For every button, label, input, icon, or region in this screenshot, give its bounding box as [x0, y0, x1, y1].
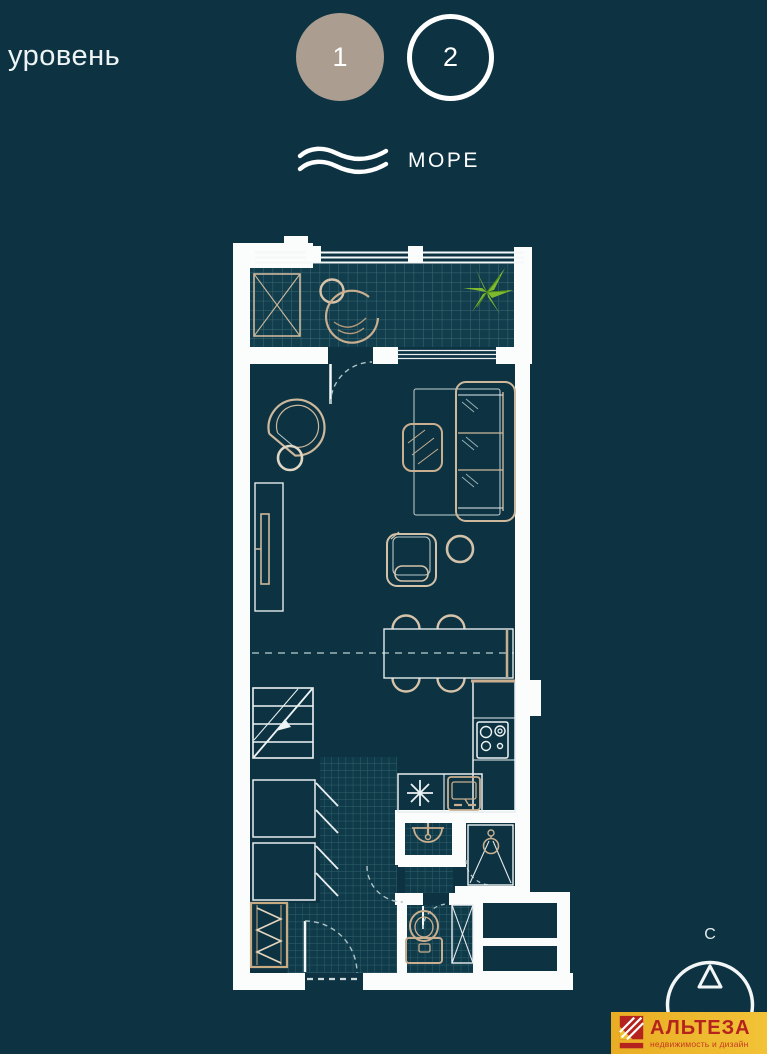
- coat-rack-icon: [251, 903, 287, 967]
- kitchen-sink-icon: [448, 777, 480, 810]
- sink-star-icon: [407, 780, 433, 806]
- level-2-button[interactable]: 2: [407, 14, 494, 101]
- level-1-number: 1: [332, 42, 347, 73]
- cooktop-icon: [477, 722, 508, 758]
- walls: [233, 236, 573, 990]
- logo-mark-icon: [618, 1015, 645, 1051]
- stairs-icon: [253, 688, 313, 758]
- sofa-icon: [456, 382, 515, 521]
- balcony-tiles: [250, 264, 515, 347]
- north-label: С: [698, 926, 722, 944]
- level-1-button[interactable]: 1: [296, 13, 384, 101]
- level-label: уровень: [8, 40, 120, 73]
- tv-console-icon: [255, 483, 283, 611]
- floor-plan-page: { "header": { "level_label": "уровень", …: [0, 0, 767, 1054]
- side-table-icon: [447, 536, 473, 562]
- coffee-table-icon: [403, 424, 442, 471]
- shaft-voids: [483, 903, 557, 971]
- side-table-icon: [278, 446, 302, 470]
- armchair-icon: [261, 388, 336, 462]
- sea-waves-icon: [297, 145, 389, 179]
- floor-plan-svg: [228, 232, 576, 994]
- logo-subtitle: недвижимость и дизайн: [650, 1040, 751, 1049]
- level-2-number: 2: [443, 42, 458, 73]
- shower-icon: [468, 825, 513, 885]
- lounge-chair-icon: [387, 532, 436, 586]
- sliding-window: [397, 351, 496, 359]
- balcony-door: [331, 362, 373, 404]
- sea-label: МОРЕ: [408, 149, 480, 173]
- logo-banner[interactable]: АЛЬТЕЗА недвижимость и дизайн: [611, 1012, 767, 1054]
- logo-title: АЛЬТЕЗА: [650, 1018, 751, 1038]
